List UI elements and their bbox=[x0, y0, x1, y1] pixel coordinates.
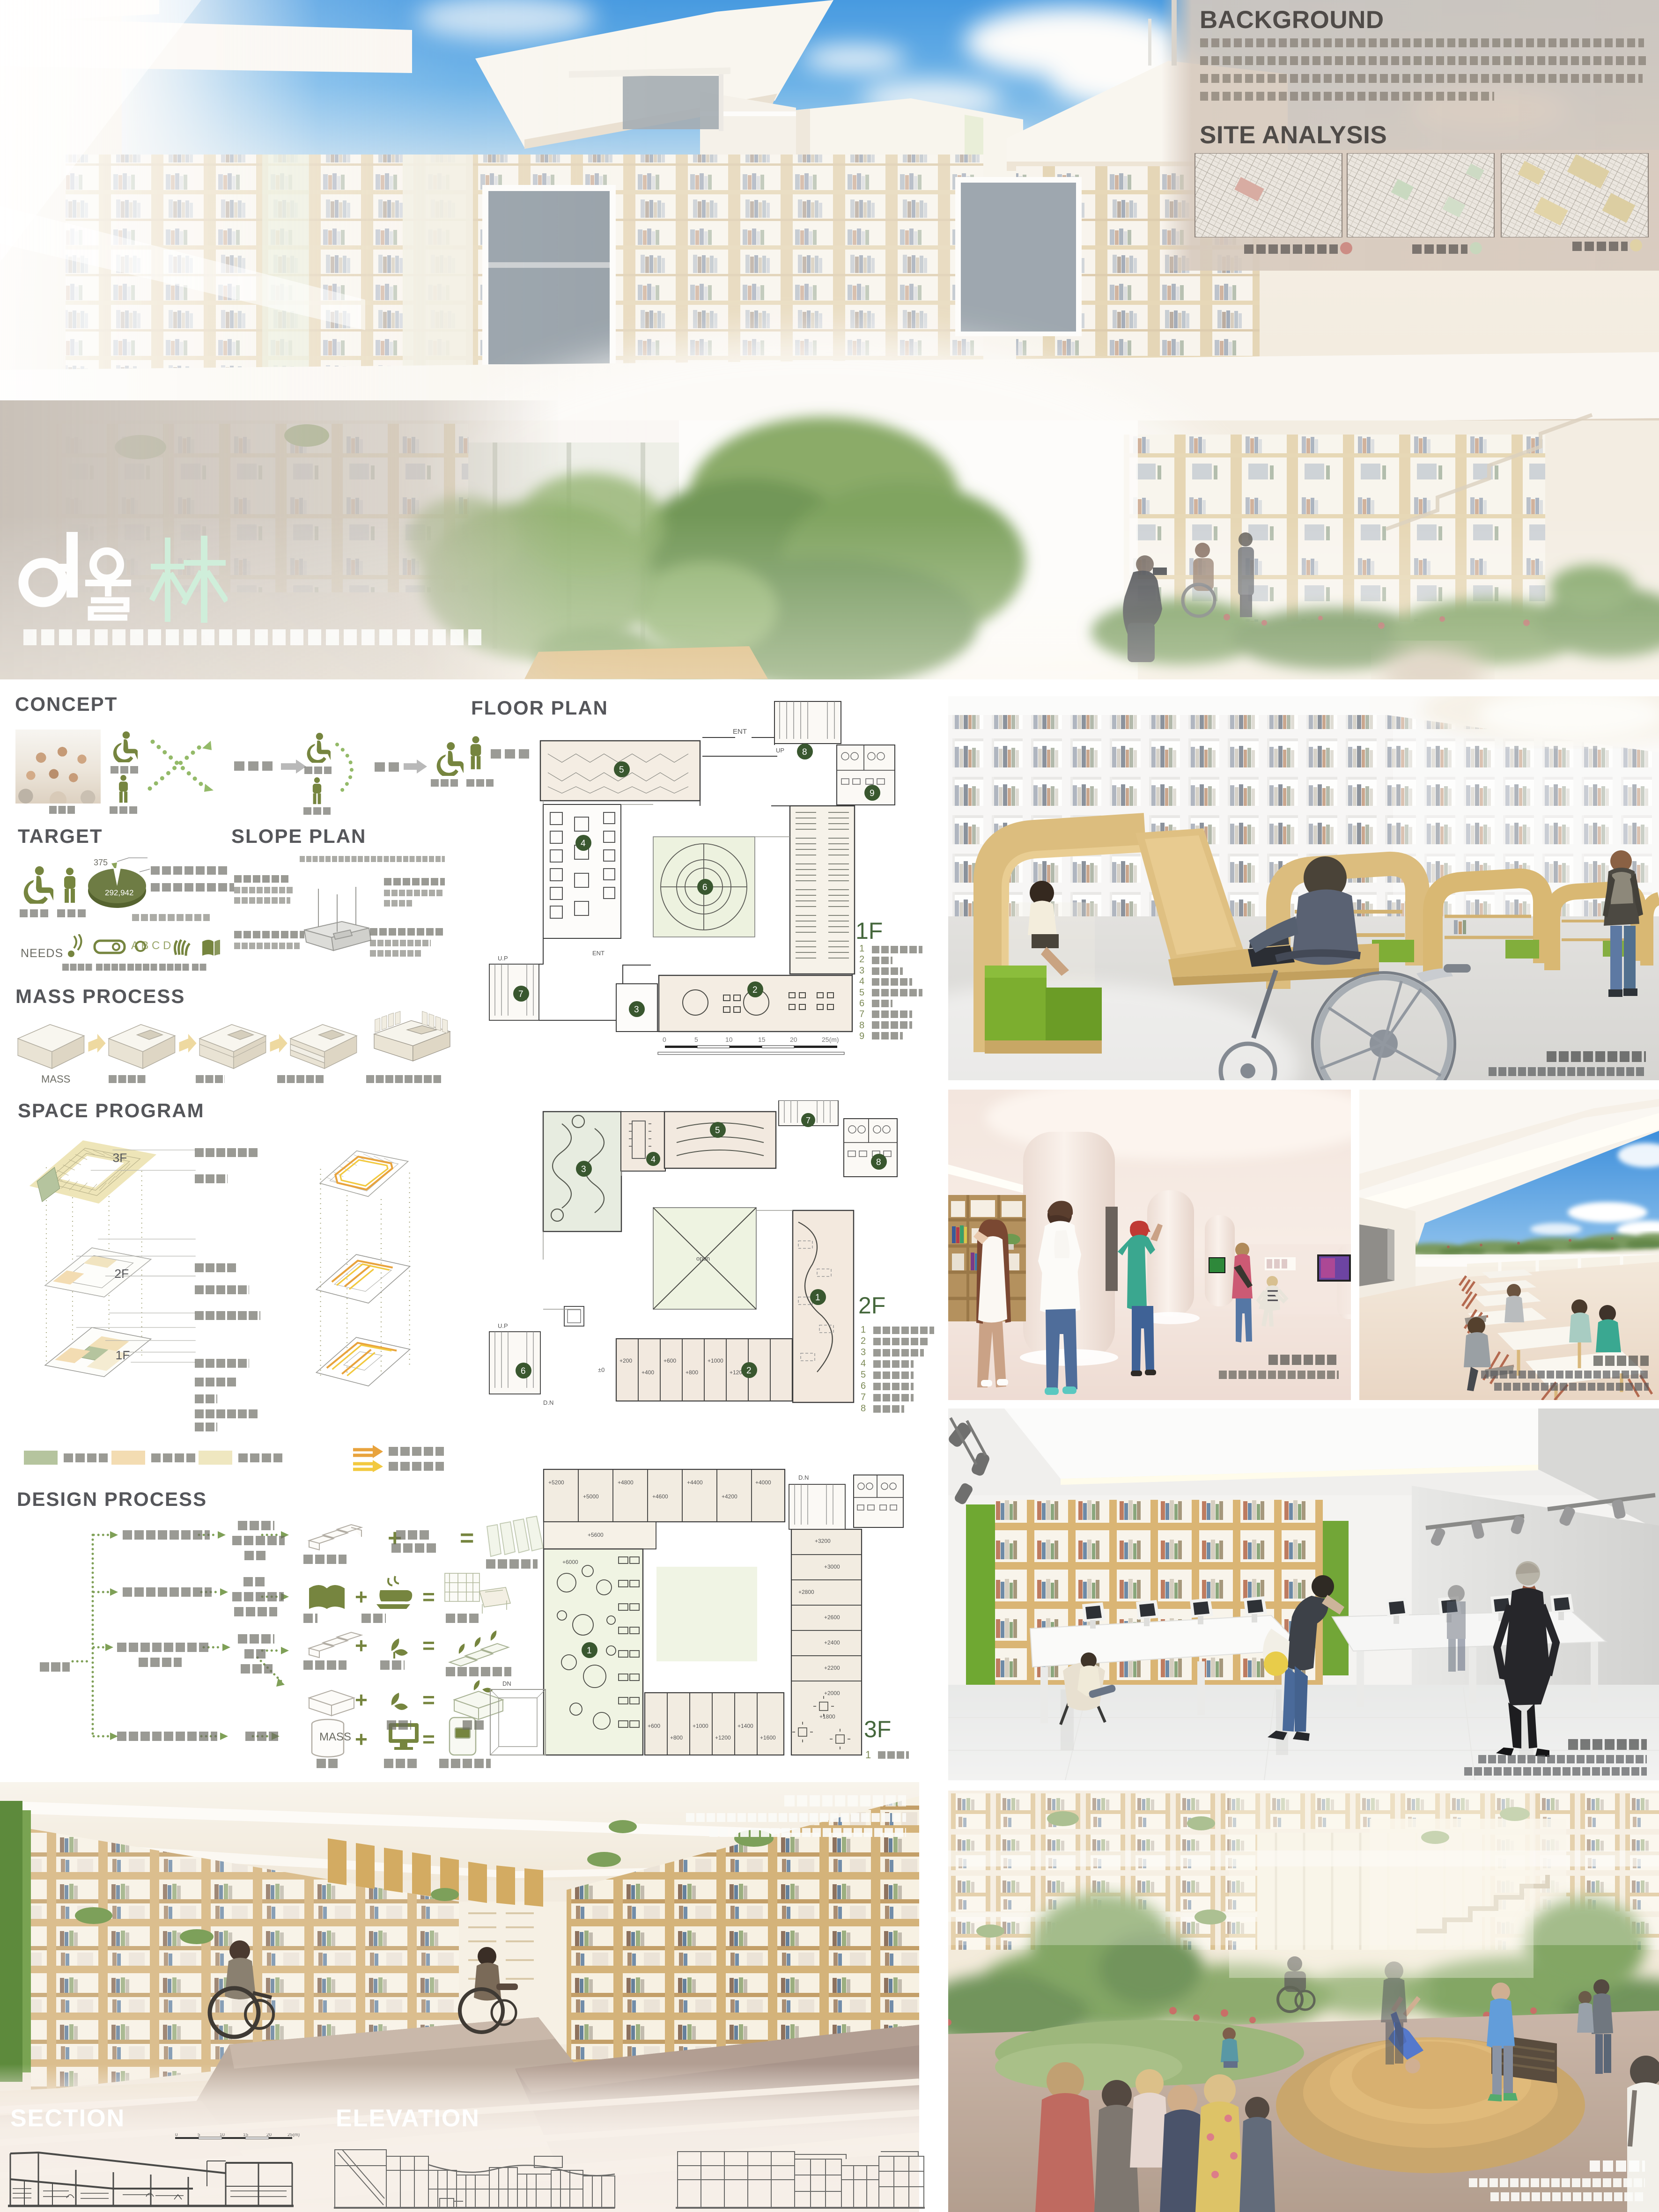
svg-text:=: = bbox=[422, 1633, 435, 1658]
svg-text:7: 7 bbox=[518, 989, 524, 999]
svg-text:+5200: +5200 bbox=[548, 1479, 564, 1486]
svg-text:3: 3 bbox=[581, 1165, 586, 1174]
svg-text:=: = bbox=[422, 1585, 435, 1609]
svg-text:5: 5 bbox=[694, 1036, 698, 1043]
svg-text:25(m): 25(m) bbox=[822, 1036, 839, 1043]
svg-text:5: 5 bbox=[619, 765, 624, 775]
svg-text:+4200: +4200 bbox=[722, 1493, 737, 1500]
svg-text:+2200: +2200 bbox=[824, 1665, 840, 1671]
svg-text:5: 5 bbox=[715, 1126, 720, 1135]
svg-text:+600: +600 bbox=[648, 1723, 660, 1729]
svg-text:=: = bbox=[422, 1688, 435, 1712]
svg-text:1: 1 bbox=[815, 1293, 820, 1303]
svg-text:U.P: U.P bbox=[498, 955, 508, 962]
svg-text:292,942: 292,942 bbox=[105, 888, 133, 897]
svg-text:U.P: U.P bbox=[498, 1322, 508, 1329]
svg-text:+6000: +6000 bbox=[562, 1559, 578, 1565]
svg-text:2: 2 bbox=[746, 1366, 752, 1376]
svg-text:+3200: +3200 bbox=[815, 1538, 831, 1544]
svg-text:D.N: D.N bbox=[798, 1474, 809, 1481]
svg-text:+200: +200 bbox=[619, 1357, 632, 1364]
svg-text:8: 8 bbox=[876, 1158, 881, 1167]
svg-text:+2400: +2400 bbox=[824, 1639, 840, 1646]
svg-text:ENT: ENT bbox=[733, 728, 747, 736]
svg-text:25(m): 25(m) bbox=[288, 2133, 300, 2138]
svg-text:D.N: D.N bbox=[543, 1399, 553, 1406]
svg-text:+1000: +1000 bbox=[693, 1723, 708, 1729]
svg-text:+4800: +4800 bbox=[618, 1479, 634, 1486]
svg-text:+800: +800 bbox=[670, 1734, 683, 1741]
svg-text:3F: 3F bbox=[864, 1716, 891, 1742]
svg-text:+400: +400 bbox=[641, 1369, 654, 1376]
svg-text:0: 0 bbox=[175, 2133, 178, 2138]
svg-text:+1000: +1000 bbox=[708, 1357, 723, 1364]
svg-text:+800: +800 bbox=[686, 1369, 698, 1376]
svg-text:9: 9 bbox=[870, 789, 875, 798]
svg-text:+1800: +1800 bbox=[819, 1713, 835, 1720]
svg-text:20: 20 bbox=[266, 2133, 272, 2138]
svg-text:+4400: +4400 bbox=[687, 1479, 703, 1486]
svg-text:+5000: +5000 bbox=[583, 1493, 599, 1500]
svg-text:10: 10 bbox=[725, 1036, 733, 1043]
svg-text:0: 0 bbox=[663, 1036, 666, 1043]
svg-text:+1400: +1400 bbox=[737, 1723, 753, 1729]
svg-text:1F: 1F bbox=[855, 918, 883, 944]
svg-text:3: 3 bbox=[634, 1005, 639, 1015]
svg-text:10: 10 bbox=[220, 2133, 225, 2138]
svg-text:+3000: +3000 bbox=[824, 1563, 840, 1570]
svg-text:DN: DN bbox=[502, 1680, 511, 1687]
svg-text:15: 15 bbox=[758, 1036, 766, 1043]
svg-text:2F: 2F bbox=[858, 1292, 885, 1319]
svg-text:4: 4 bbox=[651, 1155, 656, 1164]
svg-text:3F: 3F bbox=[112, 1151, 127, 1165]
svg-text:+: + bbox=[355, 1585, 368, 1609]
svg-text:ENT: ENT bbox=[592, 950, 605, 957]
svg-text:±0: ±0 bbox=[598, 1366, 605, 1373]
svg-text:+2600: +2600 bbox=[824, 1614, 840, 1621]
svg-text:8: 8 bbox=[802, 747, 807, 757]
svg-text:+600: +600 bbox=[664, 1357, 676, 1364]
svg-text:+: + bbox=[355, 1688, 368, 1712]
svg-text:4: 4 bbox=[581, 839, 586, 848]
svg-text:375: 375 bbox=[94, 858, 108, 867]
svg-text:7: 7 bbox=[806, 1116, 811, 1125]
svg-text:+4600: +4600 bbox=[652, 1493, 668, 1500]
svg-text:+2000: +2000 bbox=[824, 1690, 840, 1696]
svg-text:1F: 1F bbox=[116, 1348, 130, 1362]
svg-text:+: + bbox=[355, 1727, 368, 1751]
svg-text:6: 6 bbox=[702, 883, 708, 892]
svg-text:=: = bbox=[422, 1727, 435, 1751]
svg-text:20: 20 bbox=[790, 1036, 797, 1043]
svg-text:1: 1 bbox=[587, 1646, 592, 1656]
svg-text:5: 5 bbox=[198, 2133, 200, 2138]
svg-text:+: + bbox=[355, 1633, 368, 1658]
svg-text:open: open bbox=[696, 1255, 710, 1262]
svg-text:+4000: +4000 bbox=[755, 1479, 771, 1486]
svg-text:2: 2 bbox=[752, 985, 758, 995]
svg-text:+2800: +2800 bbox=[798, 1589, 814, 1595]
svg-text:UP: UP bbox=[776, 747, 784, 754]
svg-text:2F: 2F bbox=[114, 1267, 129, 1281]
svg-text:+1600: +1600 bbox=[760, 1734, 776, 1741]
svg-text:+5600: +5600 bbox=[588, 1532, 604, 1538]
svg-text:+1200: +1200 bbox=[715, 1734, 731, 1741]
svg-text:6: 6 bbox=[521, 1366, 526, 1376]
svg-text:15: 15 bbox=[243, 2133, 249, 2138]
